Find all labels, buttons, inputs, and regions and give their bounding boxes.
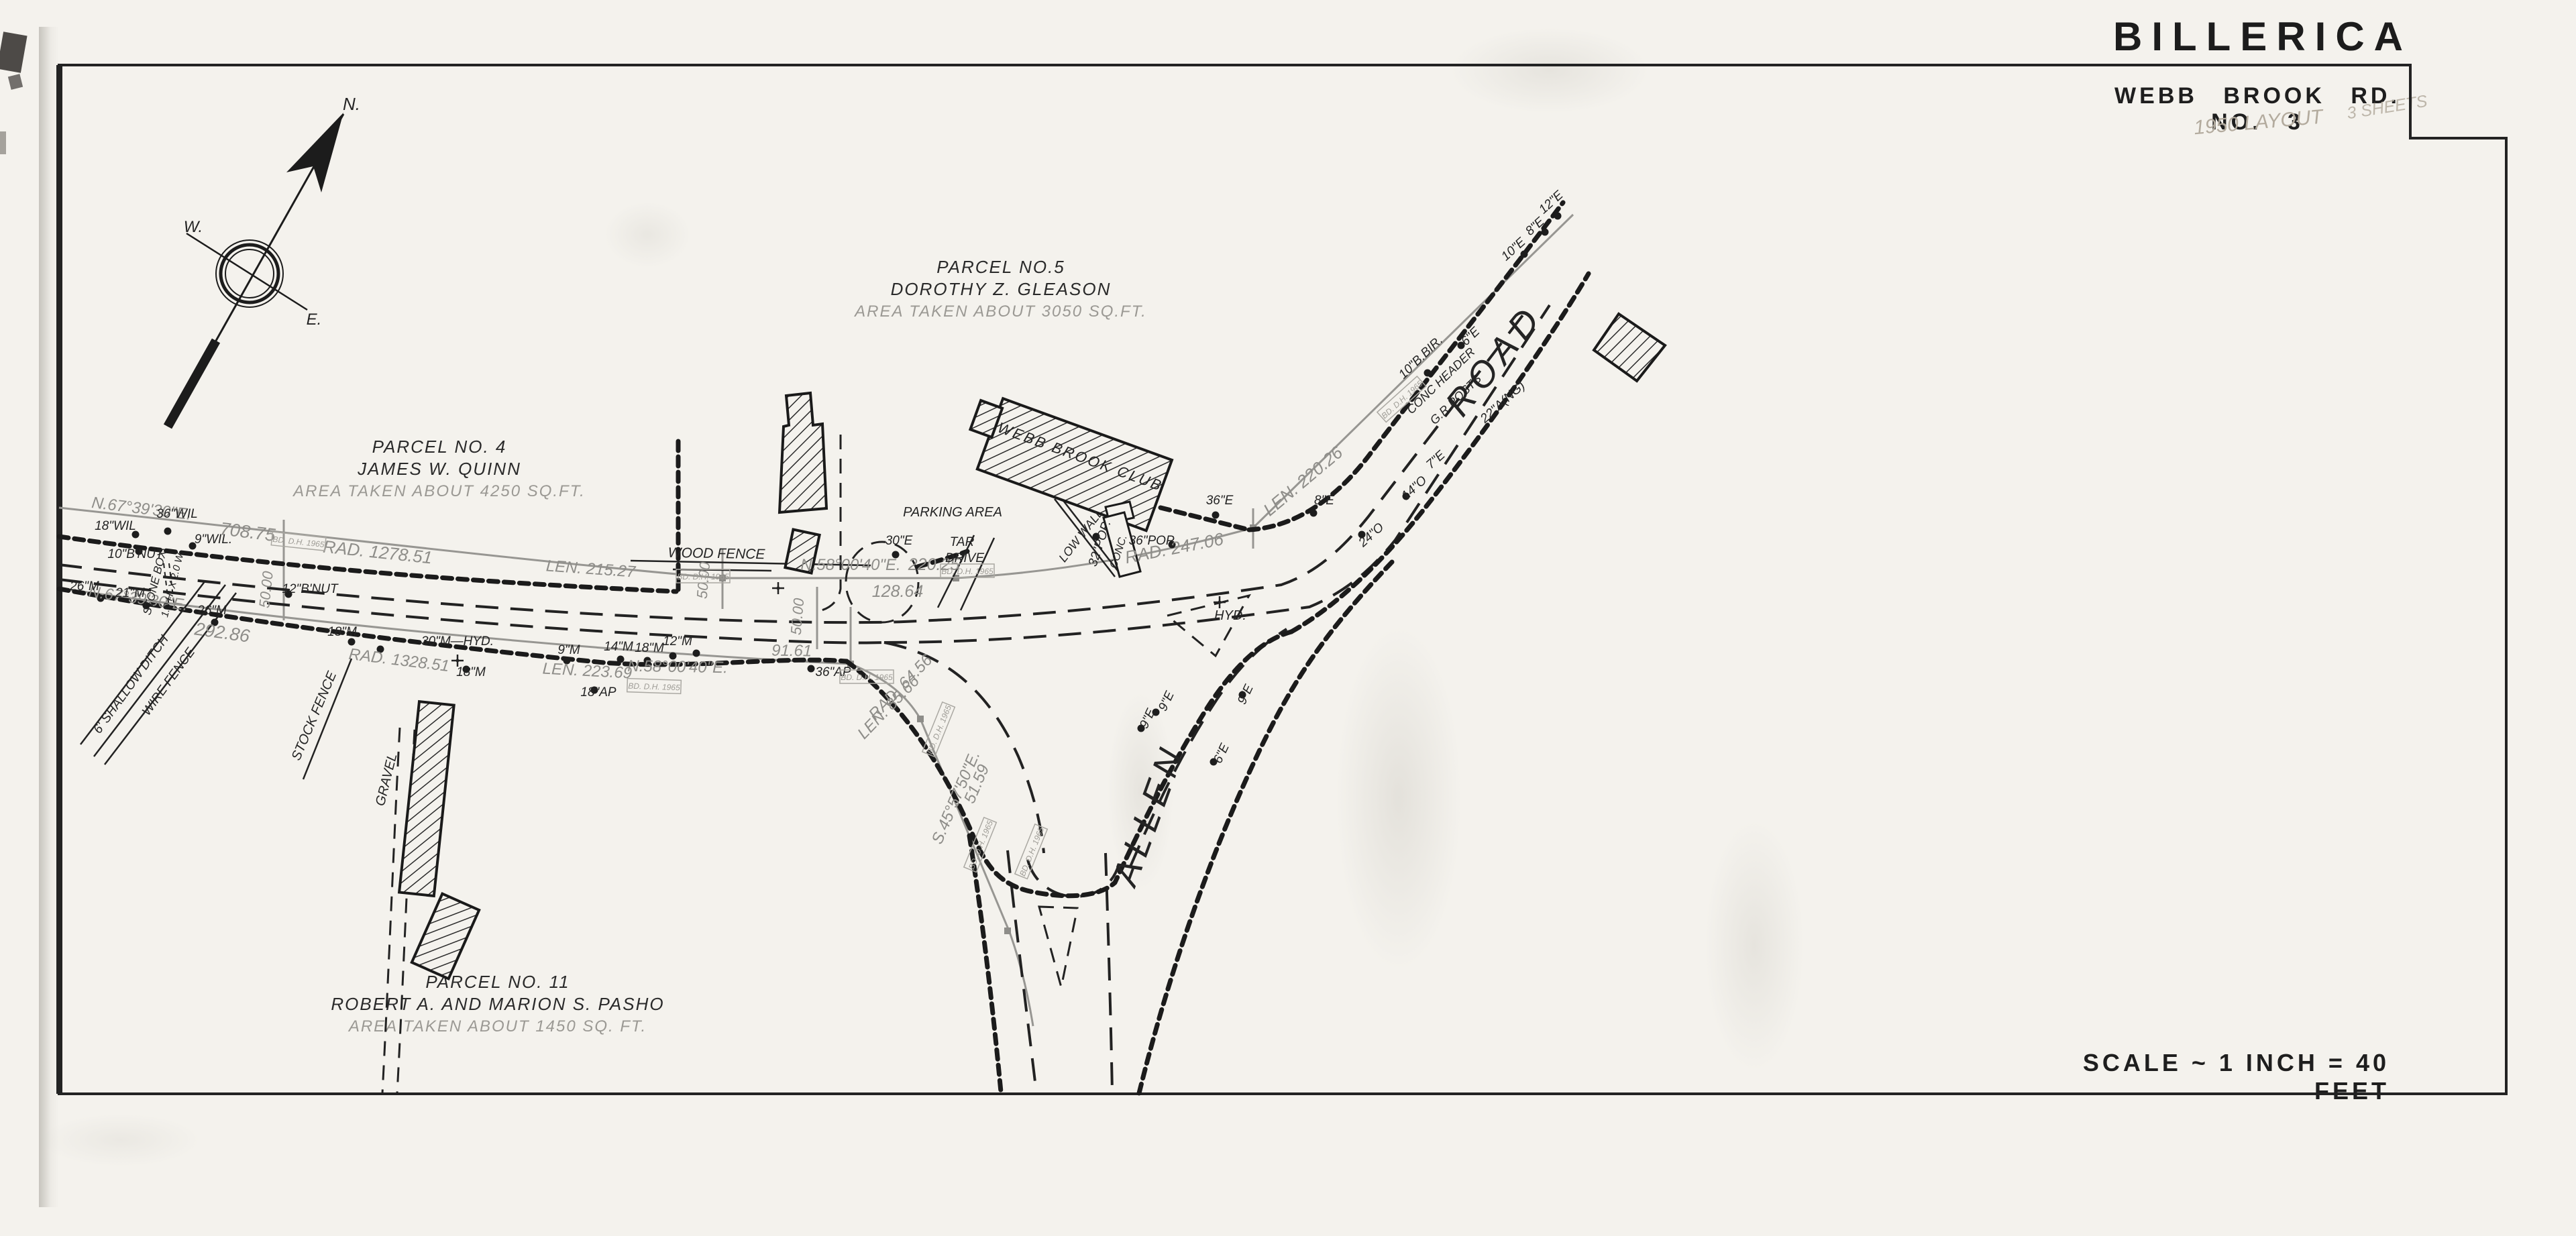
label-t-10bnut: 10"B'NUT: [107, 547, 164, 561]
label-compass-n: N.: [343, 94, 360, 114]
tree-dot: [1310, 510, 1318, 517]
label-rad-132851: RAD. 1328.51: [347, 645, 450, 675]
north-arrow: [168, 113, 343, 427]
label-t-12bnut: 12"B'NUT: [282, 582, 339, 596]
survey-stamp: BD. D.H. 1965: [628, 681, 680, 693]
label-t-18m-a: 18"M: [327, 625, 357, 639]
label-len-22026: LEN. 220.26: [1259, 442, 1346, 520]
label-compass-e: E.: [307, 311, 322, 329]
plan-drawing: N.W.E.N.67°39'30"E.708.75RAD. 1278.51LEN…: [0, 0, 2576, 1236]
tree-dot: [617, 656, 625, 663]
label-len-22369: LEN. 223.69: [542, 660, 633, 683]
label-t-36pop: 36"POP.: [1129, 534, 1177, 548]
label-compass-w: W.: [184, 218, 203, 236]
tree-dot: [1424, 370, 1432, 377]
tree-dot: [693, 650, 700, 657]
label-drive: DRIVE: [945, 551, 984, 565]
label-t-18m-c: 18"M: [635, 641, 664, 655]
label-t-18wil: 18"WIL: [95, 519, 136, 533]
label-t-9e-c: 9"E: [1156, 689, 1177, 713]
tree-dot: [348, 638, 356, 646]
label-t-36e: 36"E: [1206, 494, 1234, 508]
label-rad-127851: RAD. 1278.51: [322, 537, 433, 568]
label-t-26m-a: 26"M: [69, 579, 99, 594]
label-t-36wil: 36"WIL: [156, 507, 198, 521]
label-t-30e: 30"E: [885, 534, 913, 548]
label-len-21527: LEN. 215.27: [545, 557, 637, 581]
label-t-18m-b: 18"M: [456, 665, 486, 679]
label-t-12m: 12"M: [663, 634, 692, 649]
label-dist-12864: 128.64: [872, 582, 923, 601]
survey-stamp: BD. D.H. 1965: [841, 673, 893, 682]
label-t-18ap: 18"AP: [580, 685, 616, 699]
label-t-26m-b: 26"M: [197, 604, 227, 618]
label-t-9e-a: 9"E: [1235, 682, 1256, 706]
station-markers: [719, 524, 1256, 934]
survey-stamp: BD. D.H. 1965: [677, 572, 729, 581]
label-allen: ALLEN: [1104, 738, 1193, 893]
tree-dot: [164, 528, 172, 535]
label-dist-29286: 292.86: [193, 618, 252, 646]
label-stock-fence: STOCK FENCE: [289, 669, 340, 763]
stone-wall-road-edges: [59, 203, 1589, 1093]
label-t-10e: 10"E: [1499, 235, 1528, 264]
label-gravel: GRAVEL: [373, 752, 400, 807]
label-tar: TAR: [950, 535, 975, 549]
building-diamond: [1594, 314, 1665, 381]
survey-stamp-box: BD. D.H. 1965: [271, 532, 326, 551]
label-t-14o: 14"O: [1399, 473, 1430, 503]
label-sta-c: 50.00: [788, 597, 808, 636]
building-tall: [780, 393, 826, 512]
survey-stamp-box: BD. D.H. 1965: [627, 679, 682, 694]
tree-dot: [1212, 512, 1220, 519]
survey-stamp-box: BD. D.H. 1965: [922, 702, 955, 757]
building-pasho-house: [399, 701, 479, 978]
label-t-12e: 12"E: [1536, 188, 1566, 217]
tree-dot: [1554, 213, 1562, 220]
label-dist-9161: 91.61: [771, 641, 812, 660]
survey-stamp: BD. D.H. 1965: [941, 567, 994, 576]
tree-dot: [808, 665, 815, 673]
label-t-9wil: 9"WIL.: [195, 532, 232, 547]
label-wood-fence: WOOD FENCE: [668, 545, 766, 563]
label-hyd-island: HYD.: [1214, 608, 1246, 623]
label-bearing-n58-low: N.58°00'40"E.: [627, 657, 728, 677]
label-parking: PARKING AREA: [903, 505, 1002, 520]
label-t-14m: 14"M: [604, 640, 633, 654]
scanned-plan-sheet: { "title": { "city": "BILLERICA", "sheet…: [0, 0, 2576, 1236]
label-m30-hyd: 30"M—HYD.: [421, 634, 494, 649]
survey-baselines: [59, 215, 1573, 1026]
label-t-8e-a: 8"E: [1314, 494, 1334, 508]
label-bearing-n58-mid: N.58°00'40"E.: [800, 556, 900, 574]
survey-stamp: BD. D.H. 1965: [925, 704, 953, 755]
label-t-21m: 21"M: [115, 586, 145, 600]
label-t-9m: 9"M: [557, 643, 580, 657]
label-t-7e: 7"E: [1424, 448, 1448, 472]
